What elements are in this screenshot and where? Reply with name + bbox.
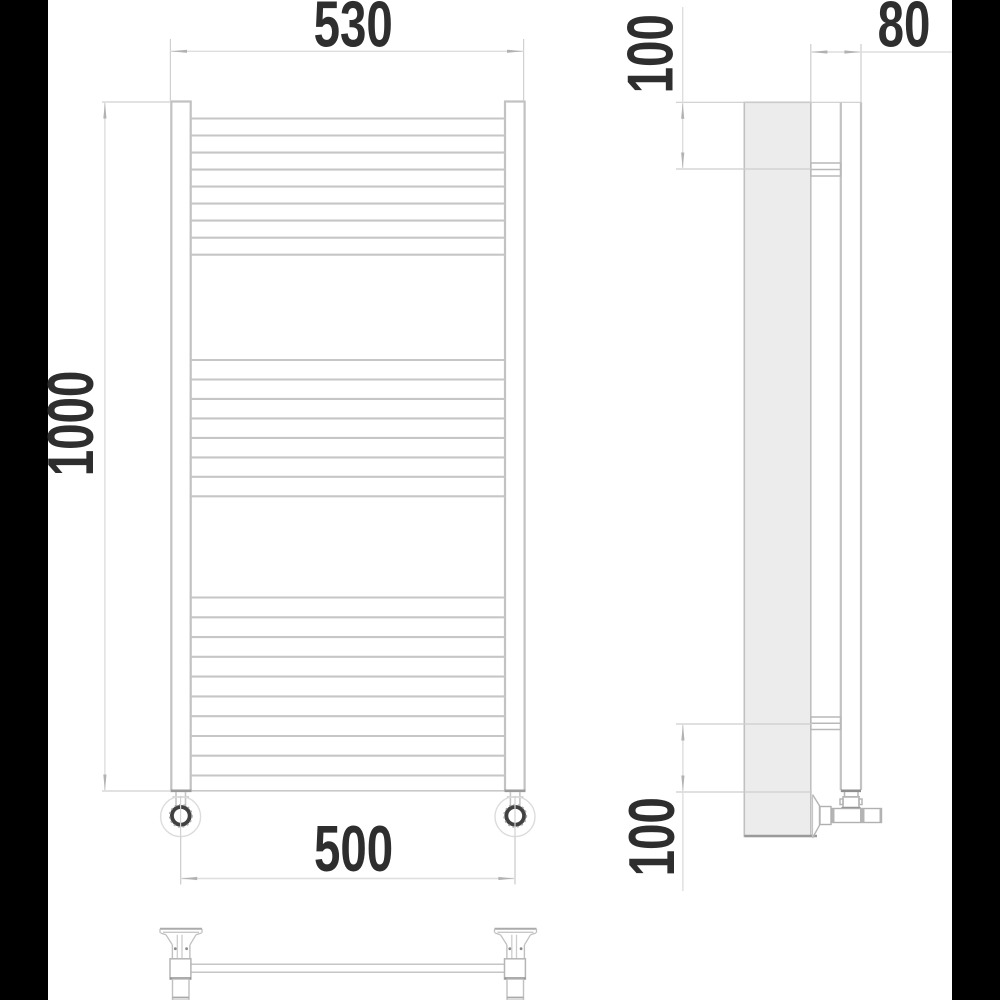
svg-text:1000: 1000: [35, 371, 108, 477]
svg-text:100: 100: [616, 797, 689, 876]
svg-text:80: 80: [878, 0, 931, 61]
svg-text:500: 500: [314, 813, 393, 886]
svg-text:530: 530: [314, 0, 393, 61]
svg-text:100: 100: [614, 14, 687, 93]
